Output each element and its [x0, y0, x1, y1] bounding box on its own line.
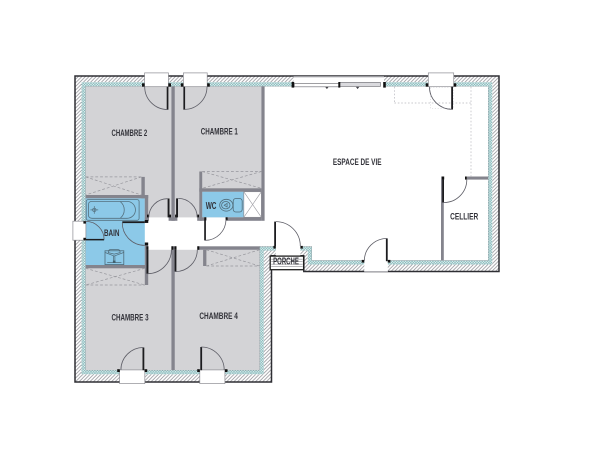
svg-text:CELLIER: CELLIER — [450, 211, 478, 222]
svg-text:BAIN: BAIN — [104, 228, 120, 239]
svg-text:PORCHE: PORCHE — [273, 257, 299, 268]
svg-text:CHAMBRE 4: CHAMBRE 4 — [199, 311, 238, 322]
svg-text:ESPACE DE VIE: ESPACE DE VIE — [333, 157, 382, 168]
svg-text:CHAMBRE 2: CHAMBRE 2 — [112, 128, 148, 139]
svg-text:WC: WC — [206, 200, 217, 212]
svg-text:CHAMBRE 1: CHAMBRE 1 — [201, 127, 239, 138]
svg-text:CHAMBRE 3: CHAMBRE 3 — [111, 312, 148, 323]
